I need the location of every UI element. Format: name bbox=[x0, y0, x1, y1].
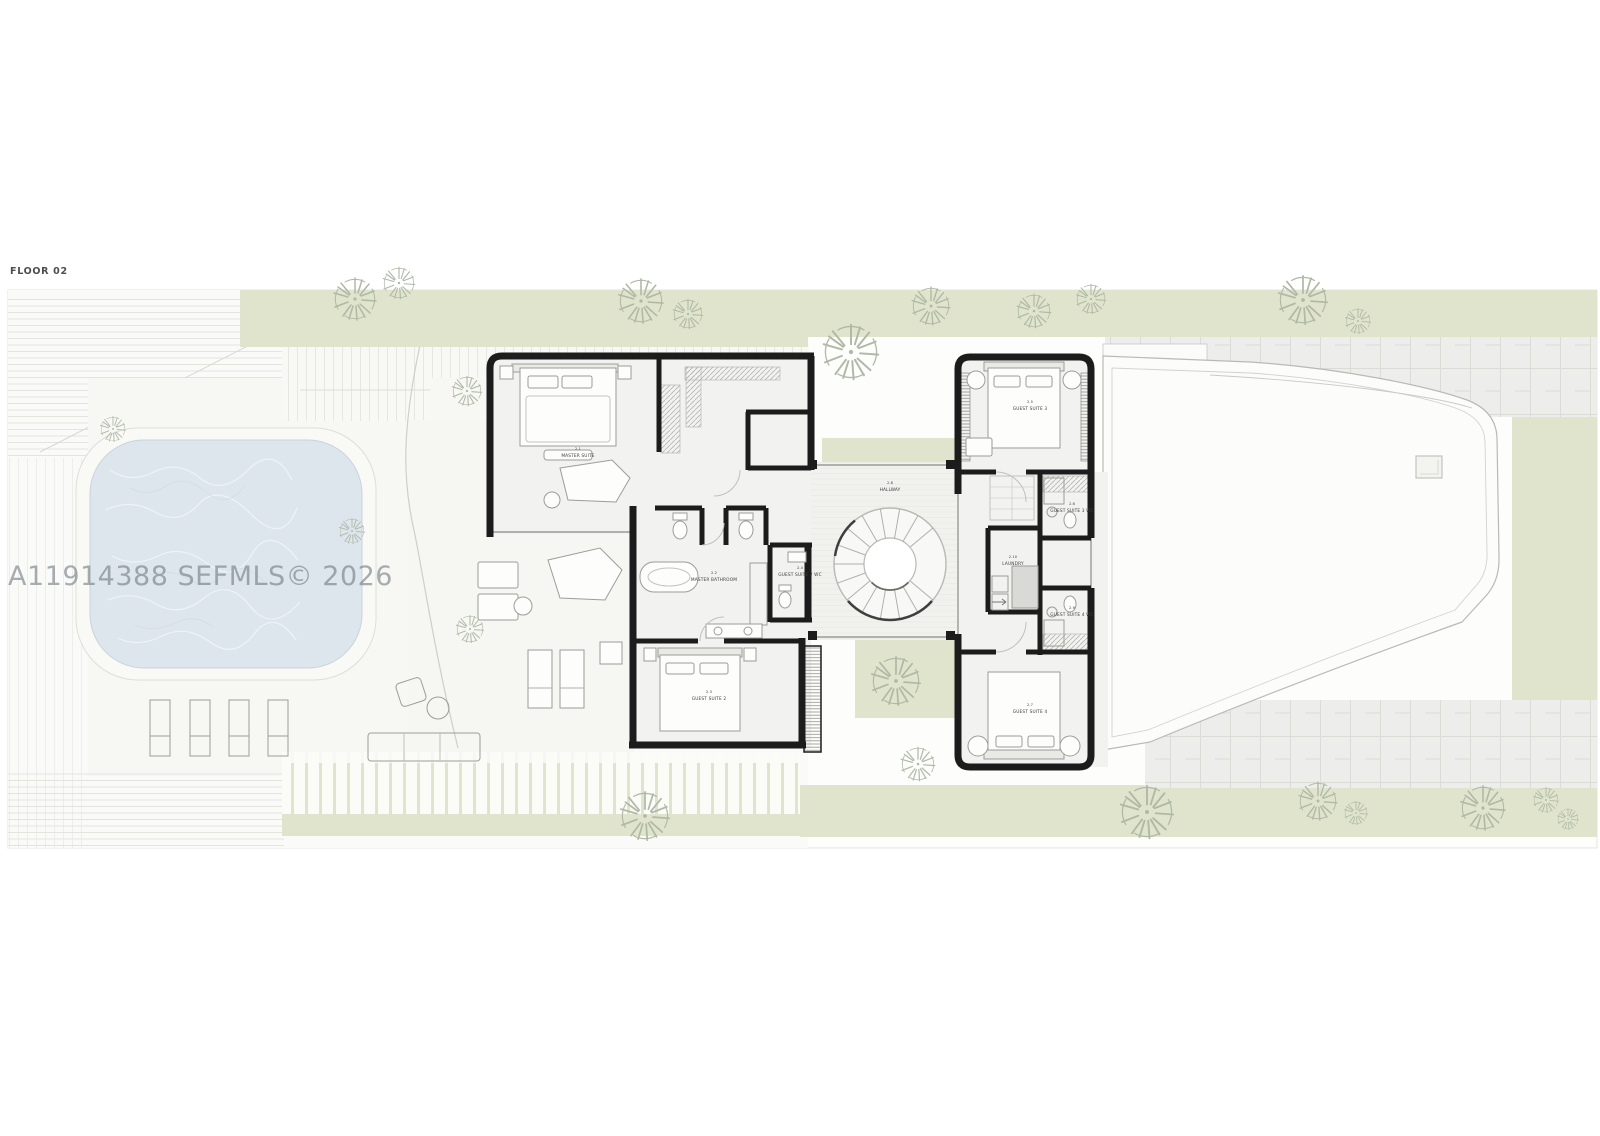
room-label-num: 2.5 bbox=[1027, 400, 1033, 404]
room-label-laundry: LAUNDRY bbox=[1002, 561, 1024, 567]
floor-title: FLOOR 02 bbox=[10, 266, 68, 277]
room-label-num: 2.6 bbox=[1069, 502, 1076, 506]
room-label-num: 2.3 bbox=[706, 690, 712, 694]
mls-watermark: A11914388 SEFMLS© 2026 bbox=[8, 561, 393, 592]
toilet bbox=[779, 592, 791, 608]
room-label-num: 2.1 bbox=[575, 447, 581, 451]
room-label-num: 2.7 bbox=[1027, 703, 1033, 707]
room-label-num: 2.4 bbox=[797, 566, 804, 570]
laundry-counter bbox=[1012, 566, 1038, 608]
room-label-guest-suite-4: GUEST SUITE 4 bbox=[1013, 709, 1048, 715]
toilet bbox=[673, 521, 687, 539]
room-label-guest-suite-2: GUEST SUITE 2 bbox=[692, 696, 727, 702]
louver-screen bbox=[804, 646, 821, 752]
bathtub bbox=[640, 562, 698, 592]
pool bbox=[76, 428, 376, 680]
room-label-guest-suite-2-wc: GUEST SUITE 2 WC bbox=[778, 572, 822, 578]
room-label-guest-suite-3: GUEST SUITE 3 bbox=[1013, 406, 1048, 412]
pool-water bbox=[90, 440, 362, 668]
toilet bbox=[1064, 512, 1076, 528]
spiral-staircase bbox=[834, 508, 946, 620]
room-label-guest-suite-3-wc: GUEST SUITE 3 WC bbox=[1050, 508, 1094, 514]
toilet bbox=[739, 521, 753, 539]
floorplan-canvas: 2.1 MASTER SUITE 2.2 MASTER BATHROOM 2.3… bbox=[0, 0, 1600, 1136]
room-label-num: 2.9 bbox=[1069, 606, 1076, 610]
room-label-guest-suite-4-wc: GUEST SUITE 4 WC bbox=[1050, 612, 1094, 618]
room-label-num: 2.8 bbox=[887, 481, 894, 485]
room-label-num: 2.2 bbox=[711, 571, 717, 575]
room-label-hallway: HALLWAY bbox=[880, 487, 901, 493]
boardwalk bbox=[282, 752, 800, 814]
room-label-master-bathroom: MASTER BATHROOM bbox=[691, 577, 737, 583]
room-label-master-suite: MASTER SUITE bbox=[561, 453, 594, 459]
room-label-num: 2.10 bbox=[1009, 555, 1018, 559]
